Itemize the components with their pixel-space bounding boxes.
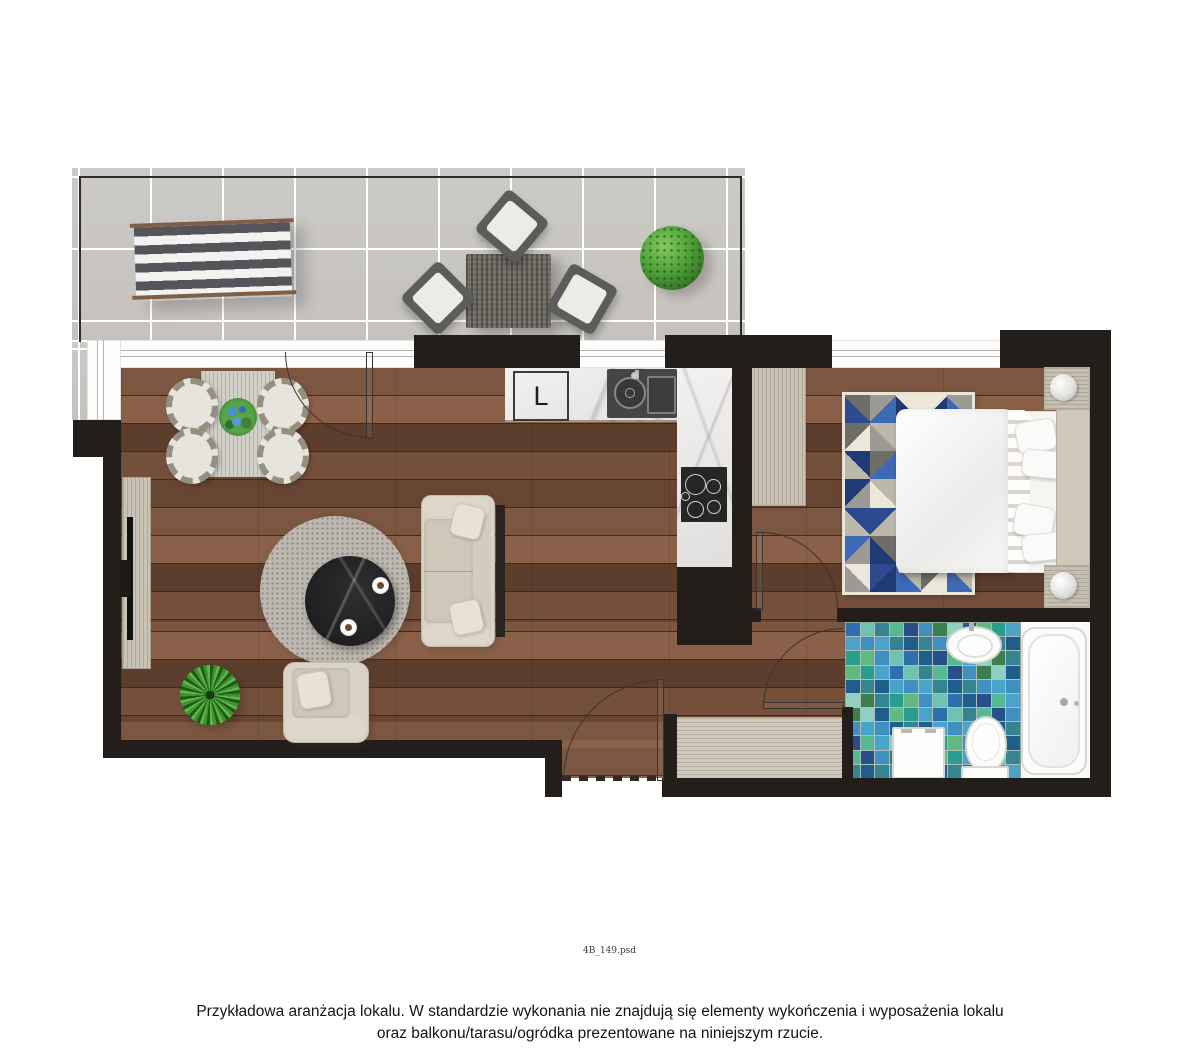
toilet-seat — [972, 723, 1000, 761]
mosaic-tile — [890, 651, 904, 664]
mosaic-tile — [919, 694, 933, 707]
wall-left-corner-block — [73, 420, 121, 457]
floor-plan: L — [0, 0, 1200, 1060]
wall-left — [103, 457, 121, 740]
fridge-label: L — [533, 381, 548, 412]
mosaic-tile — [948, 666, 962, 679]
rug-motif-cell — [845, 423, 870, 451]
mosaic-tile — [919, 651, 933, 664]
bathtub — [1021, 627, 1087, 775]
table-flowers — [219, 398, 257, 436]
burner — [707, 500, 721, 514]
mosaic-tile — [904, 694, 918, 707]
mosaic-tile — [948, 765, 962, 778]
mosaic-tile — [1006, 751, 1020, 764]
mosaic-tile — [948, 680, 962, 693]
mosaic-tile — [890, 666, 904, 679]
mosaic-tile — [861, 722, 875, 735]
fridge-outline: L — [513, 371, 569, 421]
mosaic-tile — [919, 666, 933, 679]
mosaic-tile — [992, 694, 1006, 707]
mosaic-tile — [977, 680, 991, 693]
terrace-floor-left-return — [72, 340, 87, 420]
disclaimer: Przykładowa aranżacja lokalu. W standard… — [0, 1001, 1200, 1045]
bathtub-drain — [1060, 698, 1068, 706]
sink-rect-basin — [647, 376, 676, 414]
washer-panel-notch — [925, 729, 936, 733]
bed-duvet — [896, 409, 1014, 573]
mosaic-tile — [1006, 637, 1020, 650]
mosaic-tile — [890, 680, 904, 693]
mosaic-tile — [933, 680, 947, 693]
mosaic-tile — [846, 680, 860, 693]
hall-wardrobe — [750, 368, 805, 505]
wall-entrance-stub — [663, 714, 677, 778]
mosaic-tile — [992, 680, 1006, 693]
burner-small — [681, 492, 690, 501]
mosaic-tile — [875, 708, 889, 721]
dining-chair — [166, 428, 218, 484]
dining-chair — [257, 428, 309, 484]
rug-motif-cell — [870, 564, 895, 592]
mosaic-tile — [890, 637, 904, 650]
mosaic-tile — [1006, 694, 1020, 707]
mosaic-tile — [875, 680, 889, 693]
disclaimer-line-1: Przykładowa aranżacja lokalu. W standard… — [0, 1001, 1200, 1023]
mosaic-tile — [875, 666, 889, 679]
rug-motif-cell — [870, 536, 895, 564]
mosaic-tile — [875, 651, 889, 664]
mosaic-tile — [861, 751, 875, 764]
mosaic-tile — [948, 708, 962, 721]
mosaic-tile — [977, 666, 991, 679]
rug-motif-cell — [845, 564, 870, 592]
mosaic-tile — [1006, 666, 1020, 679]
mosaic-tile — [1006, 722, 1020, 735]
coffee-cup-drink — [345, 624, 352, 631]
wall-kitchen-base-block — [677, 567, 752, 645]
mosaic-tile — [963, 680, 977, 693]
balcony-door-leaf — [366, 352, 373, 439]
mosaic-tile — [875, 736, 889, 749]
mosaic-tile — [919, 680, 933, 693]
rug-motif-cell — [870, 423, 895, 451]
table-lamp — [1050, 572, 1077, 599]
mosaic-tile — [948, 736, 962, 749]
mosaic-tile — [933, 694, 947, 707]
mosaic-tile — [948, 751, 962, 764]
mosaic-tile — [846, 651, 860, 664]
window-left — [87, 340, 121, 420]
outdoor-chair-cushion — [485, 199, 539, 253]
mosaic-tile — [904, 666, 918, 679]
mosaic-tile — [1006, 651, 1020, 664]
mosaic-tile — [919, 708, 933, 721]
rug-motif-cell — [845, 536, 870, 564]
mosaic-tile — [875, 623, 889, 636]
mosaic-tile — [846, 623, 860, 636]
mosaic-tile — [963, 694, 977, 707]
mosaic-tile — [1006, 623, 1020, 636]
rug-motif-cell — [870, 479, 895, 507]
burner — [685, 474, 706, 495]
sun-lounger — [134, 216, 293, 301]
window-glazing-line — [97, 340, 98, 420]
lounger-canvas — [134, 222, 292, 295]
table-lamp — [1050, 374, 1077, 401]
mosaic-tile — [875, 722, 889, 735]
disclaimer-line-2: oraz balkonu/tarasu/ogródka prezentowane… — [0, 1023, 1200, 1045]
wall-pier-1 — [414, 335, 580, 368]
outdoor-chair-cushion — [556, 273, 608, 325]
mosaic-tile — [875, 694, 889, 707]
mosaic-tile — [861, 708, 875, 721]
mosaic-tile — [890, 708, 904, 721]
potted-plant — [180, 665, 240, 725]
burner — [687, 501, 704, 518]
mosaic-tile — [1006, 708, 1020, 721]
mosaic-tile — [846, 694, 860, 707]
coffee-cup-drink — [377, 582, 384, 589]
bed-headboard — [1056, 404, 1090, 578]
bathtub-basin — [1028, 634, 1080, 768]
window-glazing-line — [103, 340, 104, 420]
kitchen-sink-unit — [607, 369, 677, 418]
outdoor-chair-cushion — [411, 271, 465, 325]
terrace-shrub — [640, 226, 704, 290]
bedroom-door-leaf — [756, 532, 763, 610]
mosaic-tile — [846, 666, 860, 679]
tv-console-box — [120, 560, 131, 597]
mosaic-tile — [861, 666, 875, 679]
entrance-wardrobe — [677, 718, 842, 778]
coffee-cup — [373, 578, 388, 593]
mosaic-tile — [1006, 736, 1020, 749]
mosaic-tile — [977, 694, 991, 707]
dining-chair — [166, 378, 218, 434]
mosaic-tile — [948, 694, 962, 707]
rug-motif-cell — [845, 508, 870, 536]
mosaic-tile — [919, 637, 933, 650]
entrance-door-leaf — [657, 679, 664, 781]
bathroom-door-leaf — [763, 702, 844, 709]
mosaic-tile — [933, 623, 947, 636]
wall-right — [1090, 330, 1111, 797]
mosaic-tile — [963, 666, 977, 679]
sofa-seat-seam — [424, 571, 473, 572]
mosaic-tile — [875, 637, 889, 650]
washer-panel-notch — [901, 729, 912, 733]
mosaic-tile — [861, 651, 875, 664]
file-label: 4B_149.psd — [583, 946, 636, 956]
mosaic-tile — [904, 708, 918, 721]
mosaic-tile — [904, 680, 918, 693]
armchair-pillow — [295, 669, 333, 710]
mosaic-tile — [861, 637, 875, 650]
mosaic-tile — [1006, 680, 1020, 693]
rug-motif-cell — [870, 508, 895, 536]
cooktop — [681, 467, 727, 522]
wall-bottom-right — [662, 778, 1111, 797]
sofa-pillow — [448, 598, 485, 637]
mosaic-tile — [861, 623, 875, 636]
sink-faucet-base — [631, 372, 638, 379]
entrance-threshold — [562, 776, 662, 781]
mosaic-tile — [904, 651, 918, 664]
mosaic-tile — [861, 765, 875, 778]
wall-corridor-bathroom — [842, 707, 853, 778]
mosaic-tile — [861, 694, 875, 707]
wall-bedroom-door-stub — [752, 608, 761, 622]
bathtub-faucet — [1074, 701, 1079, 706]
armchair-backrest — [285, 715, 365, 739]
rug-motif-cell — [870, 451, 895, 479]
mosaic-tile — [890, 623, 904, 636]
mosaic-tile — [933, 651, 947, 664]
toilet — [965, 716, 1007, 772]
sofa-side-table — [496, 505, 505, 637]
mosaic-tile — [846, 637, 860, 650]
washbasin-bowl — [957, 634, 993, 658]
rug-motif-cell — [845, 451, 870, 479]
mosaic-tile — [948, 722, 962, 735]
rug-motif-cell — [845, 479, 870, 507]
rug-motif-cell — [845, 395, 870, 423]
mosaic-tile — [904, 637, 918, 650]
mosaic-tile — [861, 736, 875, 749]
mosaic-tile — [875, 765, 889, 778]
mosaic-tile — [933, 708, 947, 721]
wall-kitchen-corridor — [732, 368, 752, 567]
wall-bedroom-bathroom — [837, 608, 1090, 622]
sink-drain — [625, 388, 635, 398]
washbasin — [946, 626, 1002, 664]
coffee-cup — [341, 620, 356, 635]
wall-pier-2 — [665, 335, 832, 368]
mosaic-tile — [919, 623, 933, 636]
wall-entrance-step — [545, 740, 562, 797]
mosaic-tile — [890, 694, 904, 707]
mosaic-tile — [992, 666, 1006, 679]
washing-machine — [892, 727, 945, 779]
mosaic-tile — [875, 751, 889, 764]
outdoor-table — [466, 254, 551, 328]
mosaic-tile — [904, 623, 918, 636]
mosaic-tile — [861, 680, 875, 693]
mosaic-tile — [933, 666, 947, 679]
burner — [706, 479, 721, 494]
rug-motif-cell — [870, 395, 895, 423]
